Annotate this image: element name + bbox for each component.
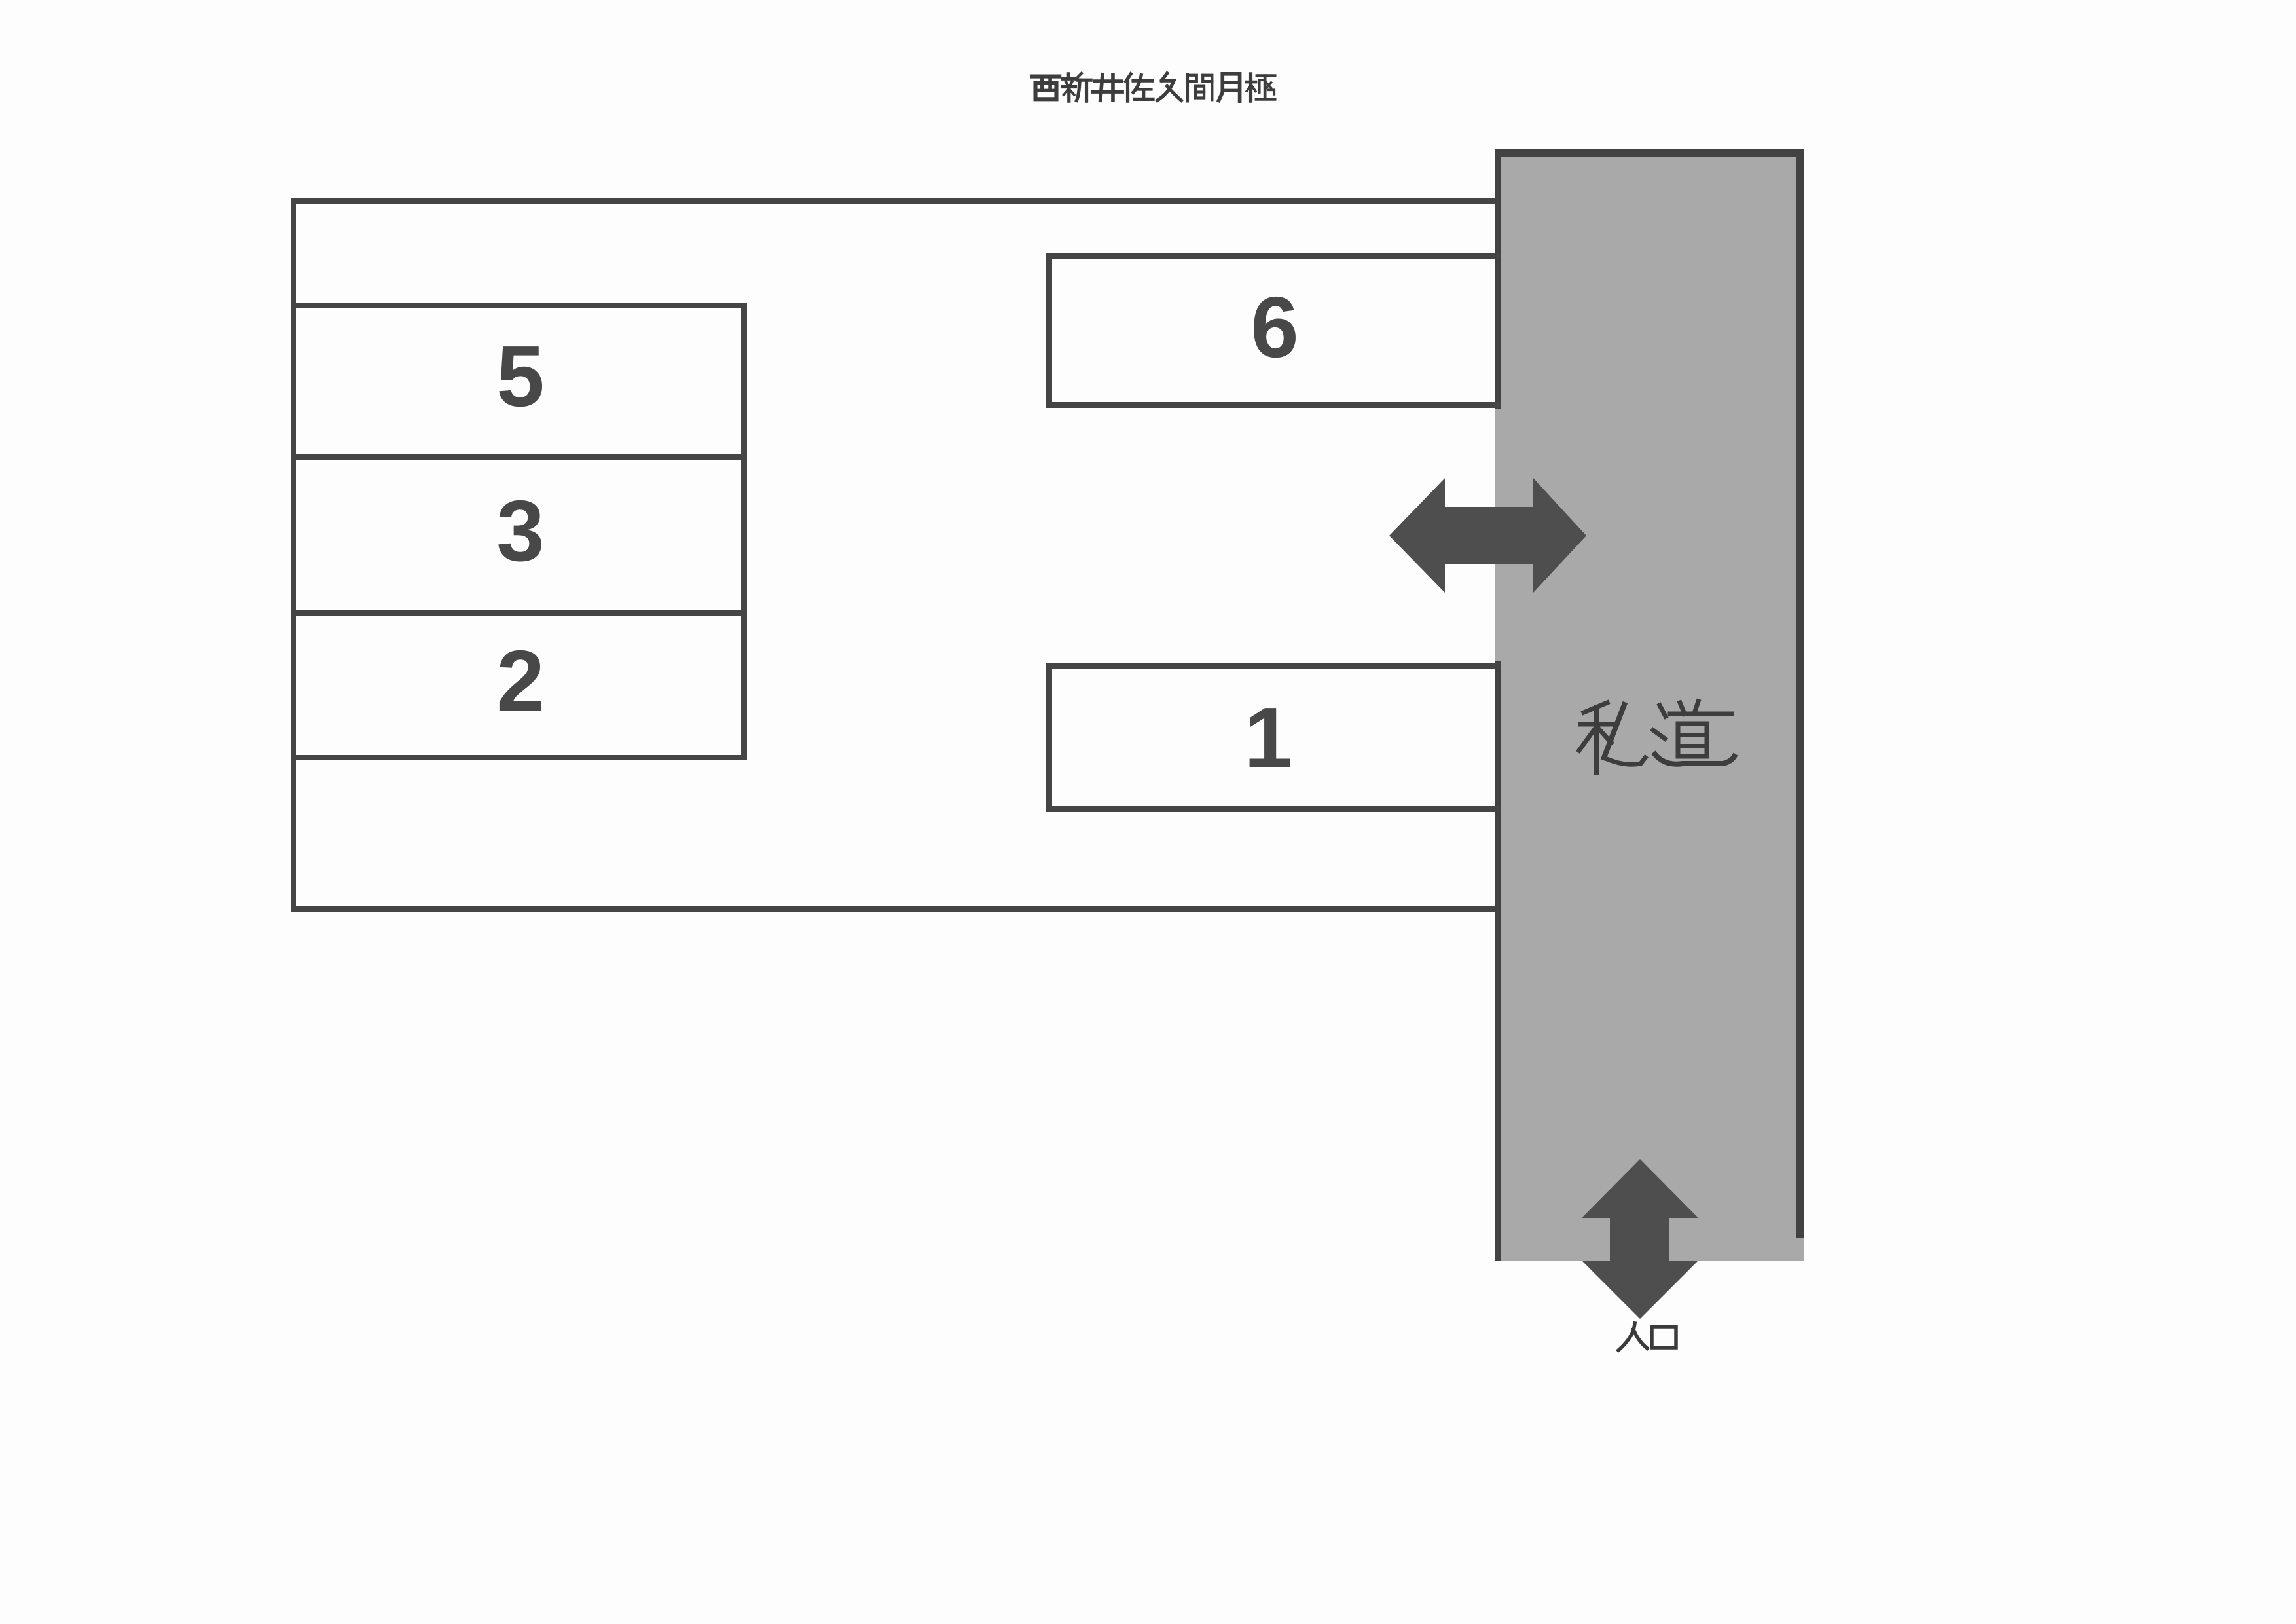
svg-text:1: 1 bbox=[1244, 690, 1292, 786]
svg-text:5: 5 bbox=[496, 328, 544, 424]
svg-text:3: 3 bbox=[496, 483, 544, 579]
svg-text:2: 2 bbox=[496, 633, 544, 729]
svg-text:6: 6 bbox=[1250, 279, 1298, 375]
